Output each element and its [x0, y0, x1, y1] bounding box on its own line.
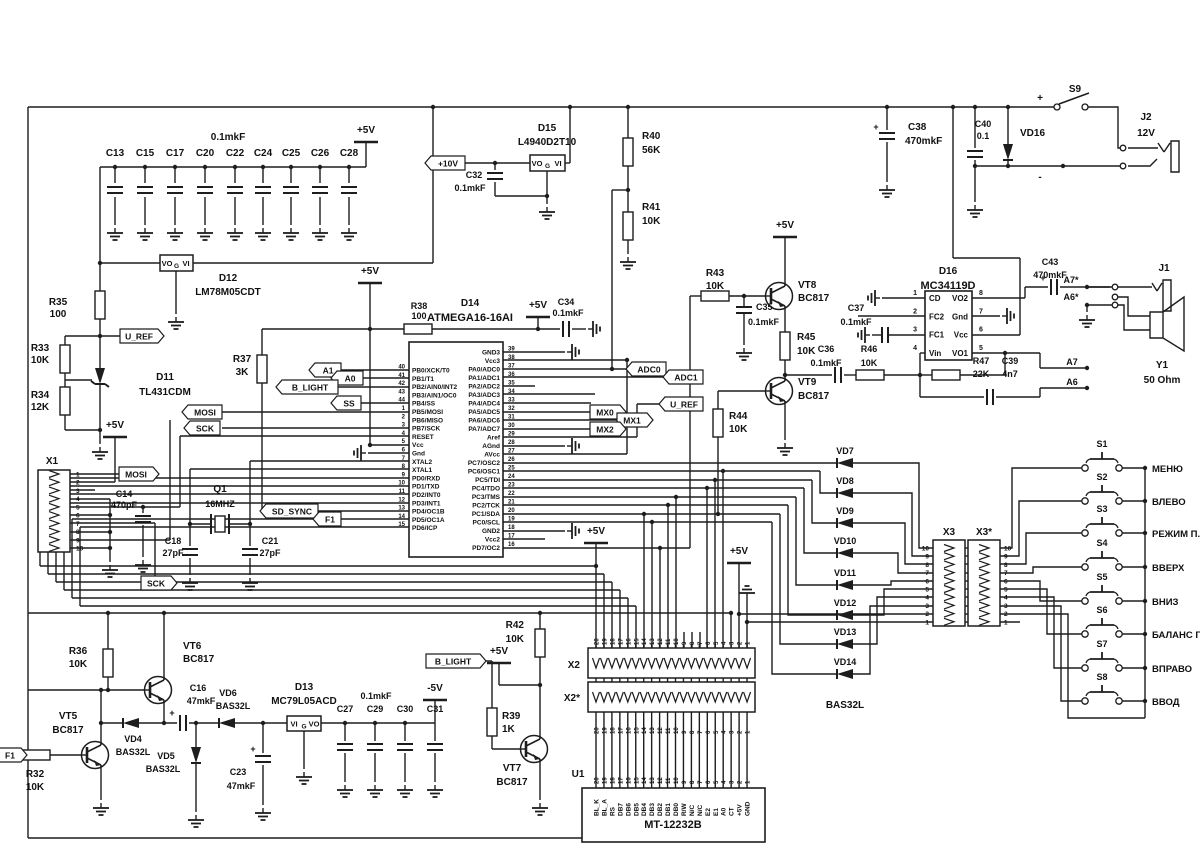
- label: 0.1mkF: [360, 691, 392, 701]
- pin-number: 36: [508, 372, 515, 378]
- ground-icon: [1002, 308, 1014, 324]
- net-flag-label: SS: [343, 399, 355, 409]
- ic-name: LM78M05CDT: [195, 287, 261, 298]
- label: R33: [31, 343, 50, 354]
- label: BC817: [496, 777, 528, 788]
- label: VT5: [59, 711, 78, 722]
- pin-number: 19: [508, 517, 515, 523]
- pin-number: 37: [508, 364, 515, 370]
- resistor-R35: [95, 291, 105, 319]
- ic-name: ATMEGA16-16AI: [427, 312, 513, 324]
- label: +: [169, 708, 174, 718]
- contact: [1082, 631, 1088, 637]
- resistor-R37: [257, 355, 267, 383]
- ground-icon: [168, 317, 184, 329]
- pin-number: 42: [398, 381, 405, 387]
- ic-ref: D15: [538, 123, 557, 134]
- diode-VD13: [837, 639, 853, 649]
- wire: [1000, 614, 1145, 718]
- pin-label: GND2: [482, 528, 500, 535]
- capacitor-C28: [341, 187, 357, 193]
- pin-label: PD2/INT0: [412, 492, 441, 499]
- button-ref: S3: [1096, 504, 1107, 514]
- pin-number: 22: [508, 491, 515, 497]
- wire: [796, 497, 837, 585]
- junction: [194, 721, 198, 725]
- label: R43: [706, 268, 725, 279]
- junction: [742, 294, 746, 298]
- pin-number: 4: [76, 496, 80, 503]
- pin-label: PC4/TDO: [472, 486, 500, 493]
- triangle: [837, 548, 853, 558]
- capacitor-C35: [736, 307, 752, 313]
- button-S8: [1082, 685, 1122, 704]
- resistor-R38: [404, 324, 432, 334]
- ground-icon: [296, 772, 312, 784]
- pin-number: 2: [76, 480, 80, 487]
- button-ref: S5: [1096, 572, 1107, 582]
- label: 27pF: [162, 548, 184, 558]
- label: C23: [230, 767, 247, 777]
- pin-label: GND: [745, 801, 752, 816]
- button-ref: S4: [1096, 538, 1107, 548]
- resistor-R43: [701, 291, 729, 301]
- label: C29: [367, 704, 384, 714]
- pin-number: 16: [626, 777, 632, 784]
- junction: [1085, 366, 1089, 370]
- label: BAS32L: [146, 764, 181, 774]
- label: C40: [975, 119, 992, 129]
- net-flag-label: SCK: [196, 424, 215, 434]
- wire: [853, 589, 933, 615]
- label: C21: [262, 536, 279, 546]
- triangle: [837, 458, 853, 468]
- pin-label: XTAL1: [412, 467, 432, 474]
- capacitor-C25: [283, 187, 299, 193]
- capacitor-C43: [1051, 279, 1057, 295]
- contact: [1112, 294, 1118, 300]
- pin-label: E2: [705, 808, 712, 816]
- pin-number: 7: [1004, 570, 1008, 577]
- label: VD16: [1020, 128, 1045, 139]
- pin-number: 16: [508, 542, 515, 548]
- contact: [1082, 465, 1088, 471]
- pin-label: PD3/INT1: [412, 500, 441, 507]
- net-flag-label: ADC1: [674, 373, 697, 383]
- pin-label: Gnd: [952, 312, 968, 321]
- connector-ref: X2: [568, 660, 581, 671]
- pin-number: 1: [76, 472, 80, 479]
- ground-icon: [93, 803, 109, 815]
- pin-label: PC0/SCL: [473, 520, 500, 527]
- junction: [143, 165, 147, 169]
- wire: [804, 488, 837, 553]
- label: 4n7: [1002, 369, 1018, 379]
- junction: [289, 165, 293, 169]
- label: VD5: [157, 751, 175, 761]
- ic-name: MC79L05ACD: [271, 696, 337, 707]
- ground-icon: [427, 785, 443, 797]
- pin-label: Vin: [929, 349, 941, 358]
- resistor-R44: [713, 409, 723, 437]
- capacitor-C40: [967, 151, 983, 157]
- label: 0.1mkF: [552, 308, 584, 318]
- label: VD6: [219, 688, 237, 698]
- ground-icon: [255, 808, 271, 820]
- net-flag-label: U_REF: [670, 400, 698, 410]
- label: A7*: [1063, 275, 1079, 285]
- label: +: [873, 122, 878, 132]
- junction: [368, 443, 372, 447]
- capacitor-C39: [987, 389, 993, 405]
- pin-number: 20: [595, 777, 601, 784]
- power-label: +5V: [529, 300, 547, 311]
- contact: [1112, 284, 1118, 290]
- label: -: [1038, 172, 1041, 183]
- button-S7: [1082, 652, 1122, 671]
- junction: [737, 612, 741, 616]
- ground-icon: [736, 348, 752, 360]
- label: C34: [558, 297, 575, 307]
- junction: [650, 520, 654, 524]
- label: R34: [31, 390, 50, 401]
- triangle: [837, 669, 853, 679]
- power-label: +5V: [776, 220, 794, 231]
- pin-number: 14: [398, 514, 405, 520]
- junction: [1143, 466, 1147, 470]
- capacitor-C26: [312, 187, 328, 193]
- ground-icon: [367, 785, 383, 797]
- junction: [343, 721, 347, 725]
- pin-number: 11: [399, 489, 406, 495]
- label: 10K: [706, 281, 725, 292]
- capacitor-C34: [563, 321, 569, 337]
- diode-VD11: [837, 580, 853, 590]
- pin-label: +5V: [737, 804, 744, 816]
- pin-label: PC5/TDI: [475, 477, 500, 484]
- capacitor-C23: [255, 756, 271, 762]
- junction: [625, 358, 629, 362]
- junction: [973, 105, 977, 109]
- pin-label: PB5/MOSI: [412, 409, 443, 416]
- contact: [1116, 665, 1122, 671]
- label: R46: [861, 344, 878, 354]
- ground-icon: [567, 438, 579, 454]
- pin-number: 20: [508, 508, 515, 514]
- label: VD10: [834, 536, 857, 546]
- pin-number: 34: [508, 389, 515, 395]
- net-flag-label: MX1: [623, 416, 641, 426]
- label: BC817: [798, 391, 830, 402]
- capacitor-C27: [337, 744, 353, 750]
- pin-label: XTAL2: [412, 459, 432, 466]
- button-S1: [1082, 452, 1122, 471]
- transistor-VT6: [145, 677, 172, 704]
- pin-number: 16: [626, 638, 632, 645]
- pin-number: 2: [913, 308, 917, 315]
- ground-icon: [283, 228, 299, 240]
- label: 0.1: [977, 131, 990, 141]
- pin-label: DB3: [649, 803, 656, 816]
- pin-number: 28: [508, 440, 515, 446]
- ground-icon: [102, 565, 118, 577]
- resistor-R36: [103, 649, 113, 677]
- junction: [106, 688, 110, 692]
- resistor-R40: [623, 138, 633, 166]
- junction: [203, 165, 207, 169]
- ground-icon: [167, 228, 183, 240]
- pin-number: 1: [402, 406, 406, 412]
- pin-number: 8: [76, 529, 80, 536]
- junction: [1006, 164, 1010, 168]
- triangle: [837, 488, 853, 498]
- capacitor-C31: [427, 744, 443, 750]
- pin-label: DB7: [617, 803, 624, 816]
- pin-label: FC1: [929, 331, 945, 340]
- pin-label: BL_K: [594, 799, 601, 816]
- power-label: +5V: [587, 526, 605, 537]
- net-flag-label: F1: [5, 751, 15, 761]
- pin-label: VI: [182, 259, 189, 268]
- pin-number: 12: [658, 638, 664, 645]
- junction: [173, 165, 177, 169]
- ground-icon: [255, 228, 271, 240]
- pin-label: PD7/OC2: [472, 545, 500, 552]
- junction: [98, 261, 102, 265]
- junction: [248, 522, 252, 526]
- capacitor-C32: [487, 173, 503, 179]
- pin-label: RS: [609, 806, 616, 816]
- junction: [1143, 499, 1147, 503]
- junction: [108, 513, 112, 517]
- ground-icon: [1079, 315, 1095, 327]
- label: 0.1mkF: [454, 183, 486, 193]
- junction: [113, 165, 117, 169]
- label: Q1: [213, 484, 227, 495]
- junction: [99, 721, 103, 725]
- contact: [1116, 631, 1122, 637]
- button-label: МЕНЮ: [1152, 464, 1183, 475]
- label: R42: [506, 620, 525, 631]
- button-ref: S2: [1096, 472, 1107, 482]
- button-S5: [1082, 585, 1122, 604]
- button-ref: S1: [1096, 439, 1107, 449]
- ground-icon: [567, 344, 579, 360]
- pin-number: 5: [979, 345, 983, 352]
- pin-label: CD: [929, 294, 941, 303]
- pin-label: N/C: [689, 805, 696, 817]
- label: C16: [190, 683, 207, 693]
- contact: [1082, 530, 1088, 536]
- capacitor-C20: [197, 187, 213, 193]
- button-S4: [1082, 551, 1122, 570]
- pin-label: A0: [721, 807, 728, 816]
- label: C13: [106, 148, 125, 159]
- pin-number: 6: [1004, 578, 1008, 585]
- label: 0.1mkF: [810, 358, 842, 368]
- pin-number: 4: [925, 595, 929, 602]
- diode-VD6: [219, 718, 235, 728]
- ground-icon: [92, 447, 108, 459]
- label: 16MHZ: [205, 499, 235, 509]
- net-flag-label: MOSI: [125, 470, 147, 480]
- pin-number: 19: [602, 777, 608, 784]
- pin-label: E1: [713, 808, 720, 816]
- pin-label: Vcc3: [485, 358, 501, 365]
- label: C35: [756, 302, 773, 312]
- lcd-ref: U1: [572, 769, 585, 780]
- junction: [347, 165, 351, 169]
- label: A6: [1066, 377, 1078, 387]
- junction: [403, 721, 407, 725]
- pin-number: 41: [398, 373, 405, 379]
- ground-icon: [620, 257, 636, 269]
- pin-label: RESET: [412, 434, 434, 441]
- label: C28: [340, 148, 359, 159]
- capacitor-C30: [397, 744, 413, 750]
- pin-label: VO1: [952, 349, 969, 358]
- pin-number: 31: [508, 415, 515, 421]
- pin-number: 8: [1004, 562, 1008, 569]
- contact: [1082, 665, 1088, 671]
- triangle: [1003, 144, 1013, 160]
- label: A7: [1066, 357, 1078, 367]
- pin-number: 12: [658, 777, 664, 784]
- junction: [1085, 303, 1089, 307]
- label: C24: [254, 148, 273, 159]
- pin-label: PD4/OC1B: [412, 509, 445, 516]
- label: R41: [642, 202, 661, 213]
- label: R35: [49, 297, 68, 308]
- label: C15: [136, 148, 155, 159]
- net-flag-label: MX2: [596, 425, 614, 435]
- junction: [610, 367, 614, 371]
- net-flag-label: U_REF: [125, 332, 153, 342]
- pin-number: 6: [76, 513, 80, 520]
- capacitor-C29: [367, 744, 383, 750]
- button-label: РЕЖИМ П.: [1152, 529, 1200, 540]
- junction: [493, 161, 497, 165]
- button-label: ВВОД: [1152, 697, 1180, 708]
- resistor-R41: [623, 212, 633, 240]
- power-label: +5V: [357, 125, 375, 136]
- button-ref: S7: [1096, 639, 1107, 649]
- label: R32: [26, 769, 45, 780]
- junction: [373, 721, 377, 725]
- pin-number: 7: [76, 521, 80, 528]
- power-label: +5V: [361, 266, 379, 277]
- pin-number: 13: [650, 777, 656, 784]
- net-flag-label: F1: [325, 515, 335, 525]
- connector-ref: X3*: [976, 527, 992, 538]
- junction: [951, 105, 955, 109]
- button-label: ВПРАВО: [1152, 664, 1192, 675]
- label: A6*: [1063, 292, 1079, 302]
- junction: [783, 373, 787, 377]
- resistor-R39: [487, 708, 497, 736]
- pin-number: 3: [925, 603, 929, 610]
- ic-ref: D16: [939, 266, 958, 277]
- label: 3K: [236, 367, 250, 378]
- wire: [1000, 468, 1082, 548]
- pin-number: 18: [610, 777, 616, 784]
- pin-label: VO: [162, 259, 173, 268]
- label: R44: [729, 411, 748, 422]
- junction: [108, 546, 112, 550]
- junction: [666, 503, 670, 507]
- pin-number: 13: [398, 506, 405, 512]
- wire: [1088, 107, 1120, 148]
- junction: [368, 327, 372, 331]
- diode-VD12: [837, 610, 853, 620]
- ground-icon: [539, 207, 555, 219]
- button-S3: [1082, 517, 1122, 536]
- pin-label: DB1: [665, 803, 672, 816]
- pin-label: PD5/OC1A: [412, 517, 445, 524]
- pin-number: 3: [1004, 603, 1008, 610]
- diode-D11: [91, 368, 109, 387]
- label: 0.1mkF: [748, 317, 780, 327]
- net-flag-label: SCK: [147, 579, 166, 589]
- label: C18: [165, 536, 182, 546]
- junction: [918, 373, 922, 377]
- label: R45: [797, 332, 816, 343]
- pin-number: 10: [922, 546, 930, 553]
- pin-number: 5: [1004, 587, 1008, 594]
- ground-icon: [739, 586, 755, 598]
- pin-label: Gnd: [412, 451, 425, 458]
- junction: [106, 611, 110, 615]
- label: 470mkF: [1033, 270, 1067, 280]
- wire: [1118, 297, 1150, 316]
- label: R47: [973, 356, 990, 366]
- junction: [261, 165, 265, 169]
- diode-VD10: [837, 548, 853, 558]
- label: C38: [908, 122, 927, 133]
- label: 10K: [69, 659, 88, 670]
- ground-icon: [879, 185, 895, 197]
- switch-contact: [1082, 104, 1088, 110]
- pin-number: 1: [913, 290, 917, 297]
- pin-number: 10: [398, 481, 405, 487]
- wire: [853, 463, 933, 548]
- label: C27: [337, 704, 354, 714]
- net-flag-label: A0: [345, 374, 356, 384]
- net-flag-label: MOSI: [194, 408, 216, 418]
- junction: [1143, 565, 1147, 569]
- capacitor-C22: [227, 187, 243, 193]
- net-flag-label: +10V: [438, 159, 458, 169]
- ground-icon: [868, 290, 880, 306]
- junction: [1143, 531, 1147, 535]
- junction: [545, 194, 549, 198]
- capacitor-C16: [180, 715, 186, 731]
- junction: [98, 334, 102, 338]
- pin-number: 19: [602, 638, 608, 645]
- triangle: [191, 747, 201, 763]
- label: D11: [156, 372, 174, 383]
- junction: [1003, 351, 1007, 355]
- diode-VD7: [837, 458, 853, 468]
- ic-name: MC34119D: [920, 280, 975, 292]
- junction: [162, 721, 166, 725]
- pin-label: GND3: [482, 350, 500, 357]
- triangle: [95, 368, 105, 384]
- pin-number: 30: [508, 423, 515, 429]
- pin-label: G: [545, 163, 550, 170]
- pin-number: 7: [979, 308, 983, 315]
- label: 10K: [729, 424, 748, 435]
